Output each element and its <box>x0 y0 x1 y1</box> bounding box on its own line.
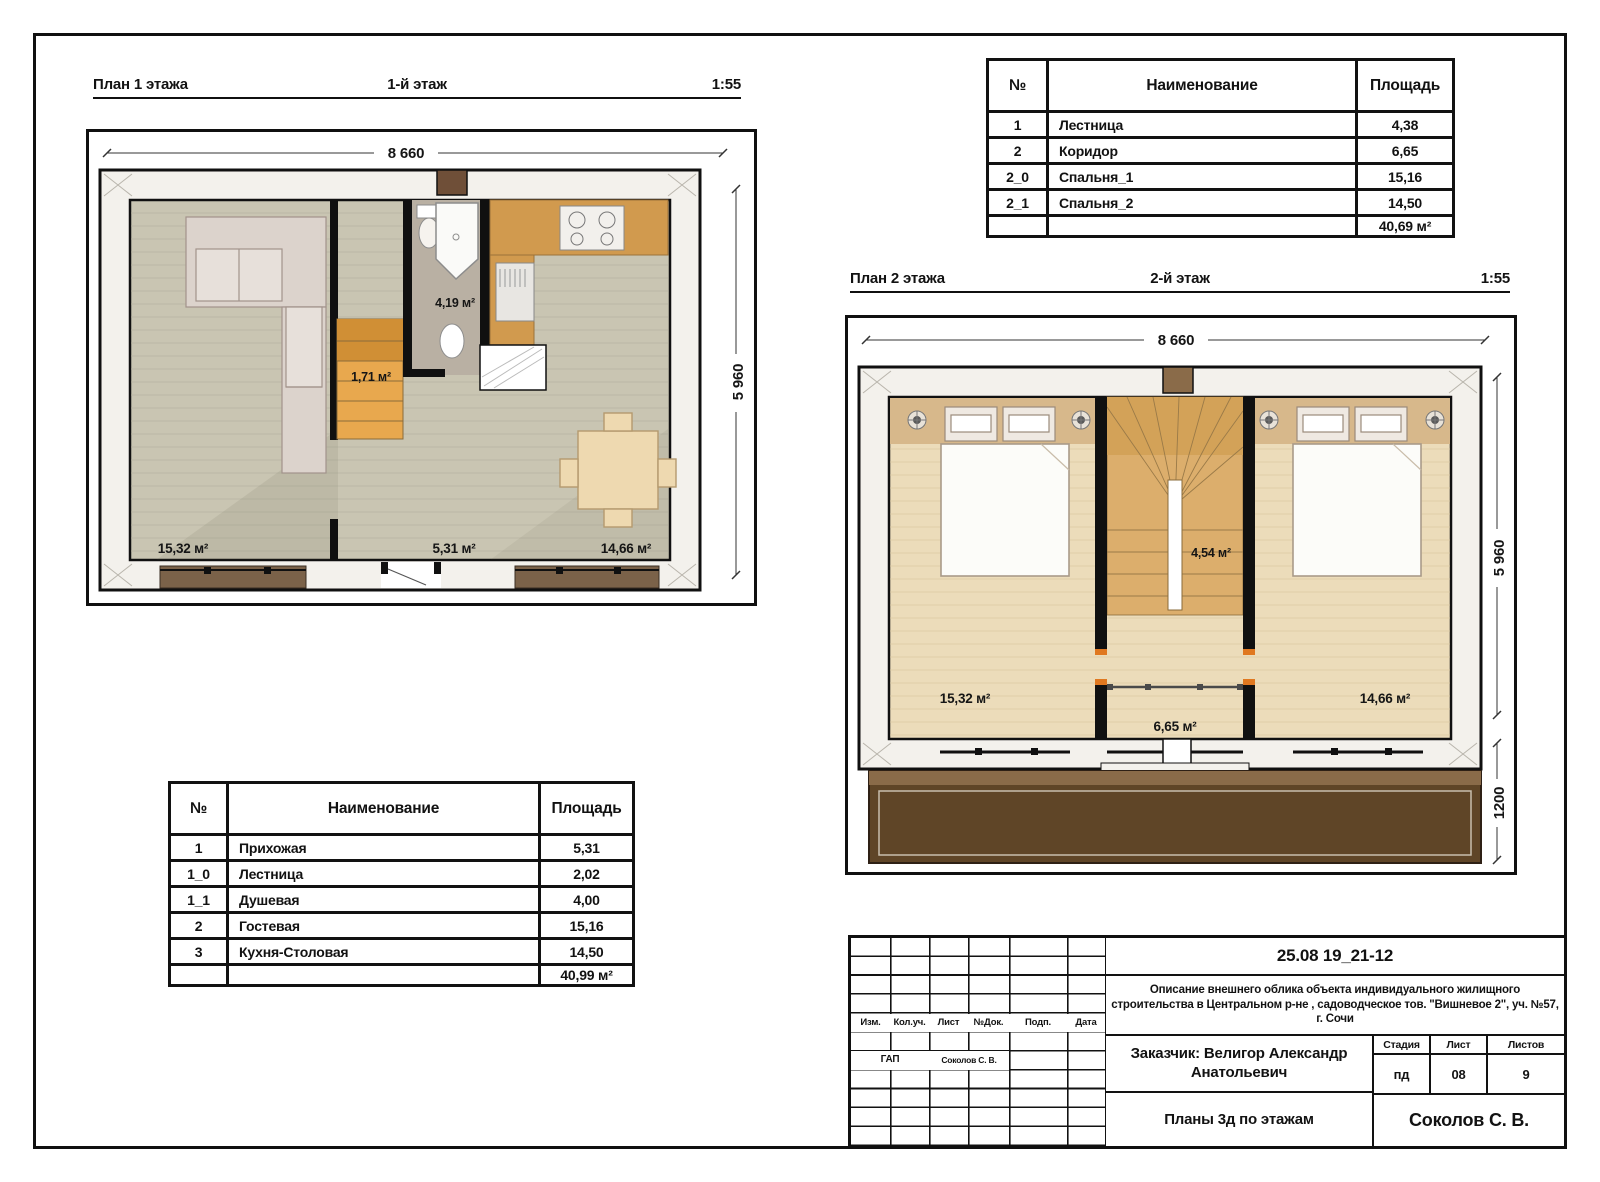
table-row: 3 Кухня-Столовая 14,50 <box>170 939 634 965</box>
plan1-area-shower: 4,19 м² <box>435 296 475 310</box>
stage-label: Стадия <box>1374 1036 1431 1055</box>
floor2-plan-drawing: 8 660 5 960 1200 <box>845 315 1517 875</box>
customer: Заказчик: Велигор Александр Анатольевич <box>1106 1036 1372 1093</box>
col-podp: Подп. <box>1009 1014 1067 1033</box>
plan1-stairs: 1,71 м² <box>337 319 403 439</box>
table-row: 2 Коридор 6,65 <box>988 138 1454 164</box>
plan1-header-title: План 1 этажа <box>93 76 188 93</box>
project-description: Описание внешнего облика объекта индивид… <box>1106 976 1564 1036</box>
plan1-area-hall: 5,31 м² <box>432 541 476 556</box>
floor2-room-table: № Наименование Площадь 1 Лестница 4,38 2… <box>986 58 1455 238</box>
plan1-area-living: 15,32 м² <box>158 541 209 556</box>
plan2-area-bedroom2: 14,66 м² <box>1360 691 1411 706</box>
bed-left <box>941 407 1069 576</box>
stage-value: пд <box>1374 1055 1431 1095</box>
entry-door <box>381 562 441 588</box>
plan2-area-corridor: 6,65 м² <box>1153 719 1197 734</box>
table-total-row: 40,69 м² <box>988 216 1454 237</box>
doc-number: 25.08 19_21-12 <box>1106 938 1564 976</box>
svg-text:5 960: 5 960 <box>1491 540 1508 577</box>
bed-right <box>1293 407 1421 576</box>
plan2-stairs: 4,54 м² <box>1107 397 1243 615</box>
bedroom2-head-strip <box>1255 398 1450 444</box>
plan2-header-title: План 2 этажа <box>850 270 945 287</box>
sheets-value: 9 <box>1488 1055 1564 1095</box>
plan1-header-floor: 1-й этаж <box>387 76 447 93</box>
col-area: Площадь <box>540 783 634 835</box>
sheet-label: Лист <box>1431 1036 1488 1055</box>
plan2-area-bedroom1: 15,32 м² <box>940 691 991 706</box>
svg-text:5 960: 5 960 <box>730 364 747 401</box>
col-izm: Изм. <box>851 1014 890 1033</box>
author: Соколов С. В. <box>1374 1095 1564 1146</box>
col-list: Лист <box>929 1014 968 1033</box>
plan1-area-kitchen: 14,66 м² <box>601 541 652 556</box>
gap-role: ГАП <box>851 1051 929 1070</box>
table-row: 1_0 Лестница 2,02 <box>170 861 634 887</box>
table-row: 2_1 Спальня_2 14,50 <box>988 190 1454 216</box>
table-header-row: № Наименование Площадь <box>988 60 1454 112</box>
plan2-area-stairs: 4,54 м² <box>1191 546 1231 560</box>
plan1-bathroom: 4,19 м² <box>403 200 490 381</box>
table-total-row: 40,99 м² <box>170 965 634 986</box>
col-num: № <box>988 60 1048 112</box>
plan1-wall-living-stub <box>330 519 338 560</box>
col-name: Наименование <box>1048 60 1357 112</box>
plan2-header-scale: 1:55 <box>1481 270 1510 287</box>
col-num: № <box>170 783 228 835</box>
stove <box>560 206 624 250</box>
plan2-header: План 2 этажа 2-й этаж 1:55 <box>850 270 1510 293</box>
col-data: Дата <box>1067 1014 1105 1033</box>
table-row: 2_0 Спальня_1 15,16 <box>988 164 1454 190</box>
sink <box>440 324 464 358</box>
sheets-label: Листов <box>1488 1036 1564 1055</box>
plan1-area-stairs: 1,71 м² <box>351 370 391 384</box>
col-area: Площадь <box>1357 60 1454 112</box>
plan1-header-scale: 1:55 <box>712 76 741 93</box>
col-koluch: Кол.уч. <box>890 1014 929 1033</box>
table-row: 1 Лестница 4,38 <box>988 112 1454 138</box>
col-ndok: №Док. <box>968 1014 1009 1033</box>
plan2-chimney <box>1163 367 1193 393</box>
drawing-title: Планы 3д по этажам <box>1106 1093 1372 1146</box>
floor1-total-area: 40,99 м² <box>540 965 634 986</box>
table-row: 1 Прихожая 5,31 <box>170 835 634 861</box>
floor1-plan-drawing: 8 660 5 960 1,71 м² <box>86 129 757 606</box>
col-name: Наименование <box>228 783 540 835</box>
svg-text:1200: 1200 <box>1491 787 1508 820</box>
table-row: 1_1 Душевая 4,00 <box>170 887 634 913</box>
plan1-windows <box>160 562 659 588</box>
table-header-row: № Наименование Площадь <box>170 783 634 835</box>
svg-text:8 660: 8 660 <box>388 145 425 162</box>
floor2-total-area: 40,69 м² <box>1357 216 1454 237</box>
title-block: Изм. Кол.уч. Лист №Док. Подп. Дата ГАП С… <box>848 935 1567 1149</box>
gap-name: Соколов С. В. <box>929 1051 1009 1070</box>
plan1-header: План 1 этажа 1-й этаж 1:55 <box>93 76 741 99</box>
plan2-header-floor: 2-й этаж <box>1150 270 1210 287</box>
title-block-revision-grid: Изм. Кол.уч. Лист №Док. Подп. Дата ГАП С… <box>851 938 1105 1146</box>
svg-text:8 660: 8 660 <box>1158 332 1195 349</box>
balcony <box>869 771 1481 863</box>
title-block-main: 25.08 19_21-12 Описание внешнего облика … <box>1105 938 1564 1146</box>
table-row: 2 Гостевая 15,16 <box>170 913 634 939</box>
sheet-value: 08 <box>1431 1055 1488 1095</box>
plan1-chimney <box>437 170 467 195</box>
floor1-room-table: № Наименование Площадь 1 Прихожая 5,31 1… <box>168 781 635 987</box>
